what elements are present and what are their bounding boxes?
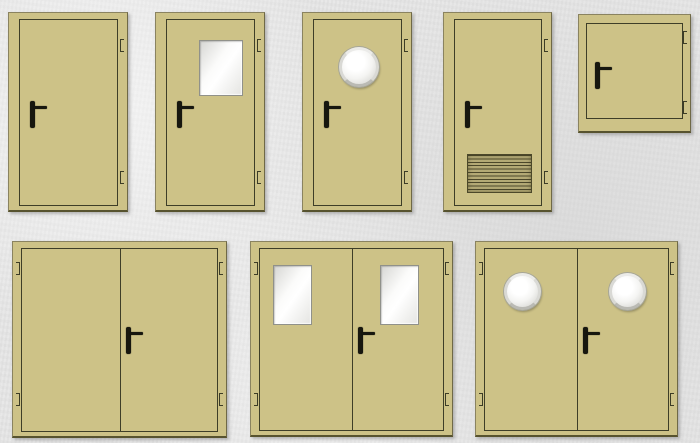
- hinge-icon: [683, 31, 687, 44]
- door-handle: [465, 101, 470, 128]
- hinge-icon: [257, 39, 261, 52]
- door-double-porthole[interactable]: [475, 241, 678, 437]
- porthole-window: [504, 273, 541, 310]
- door-leaves: [484, 248, 669, 431]
- hinge-icon: [254, 393, 258, 406]
- porthole-window: [609, 273, 646, 310]
- door-leaf: [313, 19, 402, 206]
- door-handle: [126, 327, 131, 354]
- hinge-icon: [445, 393, 449, 406]
- door-handle: [30, 101, 35, 128]
- door-handle: [595, 62, 600, 89]
- rect-window: [199, 40, 243, 96]
- door-leaf: [454, 19, 542, 206]
- door-single-porthole[interactable]: [302, 12, 412, 212]
- door-handle: [324, 101, 329, 128]
- door-handle: [583, 327, 588, 354]
- hinge-icon: [479, 262, 483, 275]
- hinge-icon: [16, 262, 20, 275]
- hinge-icon: [257, 171, 261, 184]
- door-single-plain[interactable]: [8, 12, 128, 212]
- door-leaf: [19, 19, 118, 206]
- hinge-icon: [16, 393, 20, 406]
- hinge-icon: [479, 393, 483, 406]
- leaf-divider: [577, 249, 578, 430]
- door-handle: [358, 327, 363, 354]
- hinge-icon: [219, 393, 223, 406]
- hinge-icon: [120, 171, 124, 184]
- hinge-icon: [670, 262, 674, 275]
- hinge-icon: [670, 393, 674, 406]
- hinge-icon: [404, 171, 408, 184]
- door-single-vented[interactable]: [443, 12, 552, 212]
- door-leaves: [259, 248, 444, 431]
- hinge-icon: [254, 262, 258, 275]
- leaf-divider: [352, 249, 353, 430]
- door-leaf: [166, 19, 255, 206]
- hatch-leaf: [586, 23, 683, 119]
- rect-window: [380, 265, 419, 325]
- ventilation-grille: [467, 154, 532, 193]
- hinge-icon: [544, 171, 548, 184]
- door-leaves: [21, 248, 218, 432]
- door-double-plain[interactable]: [12, 241, 227, 438]
- leaf-divider: [120, 249, 121, 431]
- hinge-icon: [404, 39, 408, 52]
- hinge-icon: [683, 101, 687, 114]
- porthole-window: [339, 47, 379, 87]
- door-catalog: [0, 0, 700, 443]
- hatch-square[interactable]: [578, 14, 691, 133]
- hinge-icon: [445, 262, 449, 275]
- hinge-icon: [544, 39, 548, 52]
- hinge-icon: [219, 262, 223, 275]
- door-double-glazed[interactable]: [250, 241, 453, 437]
- rect-window: [273, 265, 312, 325]
- hinge-icon: [120, 39, 124, 52]
- door-handle: [177, 101, 182, 128]
- door-single-glazed[interactable]: [155, 12, 265, 212]
